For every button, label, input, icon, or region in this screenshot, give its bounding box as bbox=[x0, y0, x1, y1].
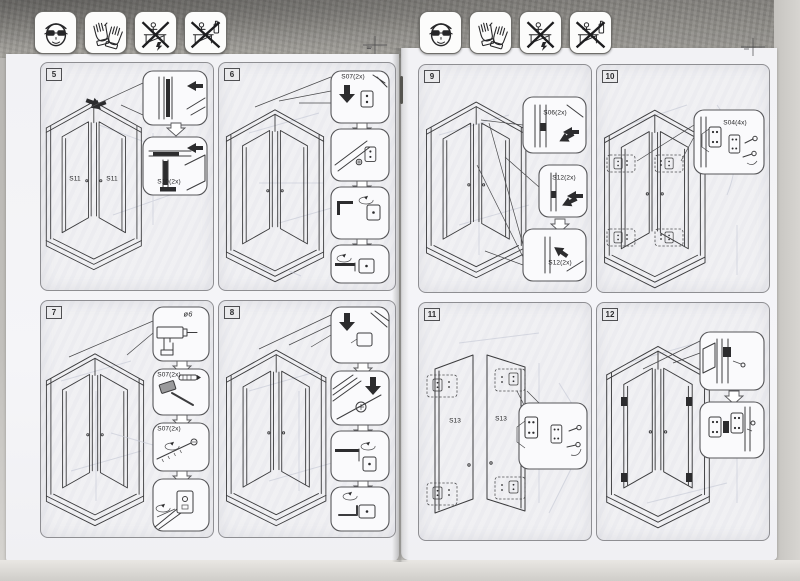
safety-goggles-icon bbox=[34, 11, 77, 54]
part-label-door-left: S13 bbox=[449, 418, 461, 425]
scanner-background-right bbox=[774, 0, 800, 581]
enclosure-drawing bbox=[46, 102, 141, 270]
step-10-illustration bbox=[597, 65, 769, 292]
callout-clip-mid bbox=[539, 165, 587, 217]
callout-allen-turn bbox=[331, 431, 389, 481]
scanner-background-bottom bbox=[0, 560, 800, 581]
step-panel-7: 7 bbox=[40, 300, 214, 538]
step-8-illustration bbox=[219, 301, 395, 537]
callout-fit-to-profile bbox=[331, 129, 389, 181]
protective-gloves-icon bbox=[469, 11, 512, 54]
step-number: 6 bbox=[224, 68, 240, 81]
callout-hinge-assembly bbox=[517, 403, 587, 469]
step-number: 10 bbox=[602, 70, 618, 83]
direction-arrows bbox=[85, 96, 108, 113]
callout-clip-bottom bbox=[523, 229, 586, 281]
enclosure-drawing bbox=[227, 350, 326, 526]
hinge-position-marks bbox=[607, 155, 683, 246]
enclosure-drawing bbox=[427, 102, 526, 278]
step-number: 5 bbox=[46, 68, 62, 81]
fold-ink-mark bbox=[400, 76, 403, 104]
part-label-hinge: S04(4x) bbox=[723, 120, 746, 127]
callout-drill bbox=[153, 307, 209, 361]
callout-allen-base bbox=[331, 487, 389, 531]
part-label-bottom: S12(2x) bbox=[548, 260, 571, 267]
protective-gloves-icon bbox=[84, 11, 127, 54]
step-panel-11: 11 S bbox=[418, 302, 592, 541]
part-label-top: S06(2x) bbox=[543, 110, 566, 117]
drill-diameter-label: ø6 bbox=[184, 310, 193, 319]
safety-icon-bar-right bbox=[419, 11, 612, 54]
step-panel-8: 8 bbox=[218, 300, 396, 538]
callout-hinge-clamped bbox=[700, 402, 764, 458]
step-7-illustration bbox=[41, 301, 213, 537]
step-panel-12: 12 bbox=[596, 302, 770, 541]
callout-clip-top bbox=[523, 97, 586, 153]
part-label-door-right: S13 bbox=[495, 416, 507, 423]
safety-goggles-icon bbox=[419, 11, 462, 54]
do-not-lean-on-enclosure-icon bbox=[569, 11, 612, 54]
callout-allen-bottom bbox=[331, 245, 389, 283]
part-label-bracket: S07(2x) bbox=[341, 74, 364, 81]
safety-icon-bar-left bbox=[34, 11, 227, 54]
enclosure-drawing bbox=[46, 354, 143, 526]
enclosure-drawing bbox=[226, 110, 323, 282]
step-panel-5: 5 S11 bbox=[40, 62, 214, 291]
callout-bracket-mount bbox=[153, 479, 209, 531]
callout-allen-tighten bbox=[331, 187, 389, 239]
step-number: 11 bbox=[424, 308, 440, 321]
callout-glass-drop bbox=[331, 371, 389, 425]
step-panel-10: 10 S04(4x) bbox=[596, 64, 770, 293]
scanned-manual-spread: 5 S11 bbox=[0, 0, 800, 581]
enclosure-drawing bbox=[605, 110, 705, 288]
step-6-illustration bbox=[219, 63, 395, 290]
callout-seal-insert bbox=[143, 71, 207, 125]
callout-seal-top bbox=[143, 137, 207, 195]
hinge-position-marks bbox=[427, 369, 525, 505]
callout-drop-fitting bbox=[331, 307, 389, 363]
step-5-illustration bbox=[41, 63, 213, 290]
step-number: 7 bbox=[46, 306, 62, 319]
crop-mark-left bbox=[363, 36, 387, 54]
step-number: 12 bbox=[602, 308, 618, 321]
step-number: 9 bbox=[424, 70, 440, 83]
do-not-lean-on-enclosure-icon bbox=[184, 11, 227, 54]
part-label-middle: S12(2x) bbox=[552, 175, 575, 182]
part-label-plug: S07(2x) bbox=[157, 372, 180, 379]
mounted-hinges bbox=[621, 397, 692, 482]
part-label-seal: S10(2x) bbox=[157, 179, 180, 186]
part-label-screw: S07(2x) bbox=[157, 426, 180, 433]
step-12-illustration bbox=[597, 303, 769, 540]
crop-mark-right bbox=[741, 38, 765, 56]
step-number: 8 bbox=[224, 306, 240, 319]
do-not-stand-on-enclosure-icon bbox=[134, 11, 177, 54]
step-panel-9: 9 bbox=[418, 64, 592, 293]
part-label-door-right: S11 bbox=[106, 176, 117, 183]
do-not-stand-on-enclosure-icon bbox=[519, 11, 562, 54]
callout-glass-into-hinge bbox=[700, 332, 764, 390]
part-label-door-left: S11 bbox=[69, 176, 80, 183]
step-panel-6: 6 bbox=[218, 62, 396, 291]
